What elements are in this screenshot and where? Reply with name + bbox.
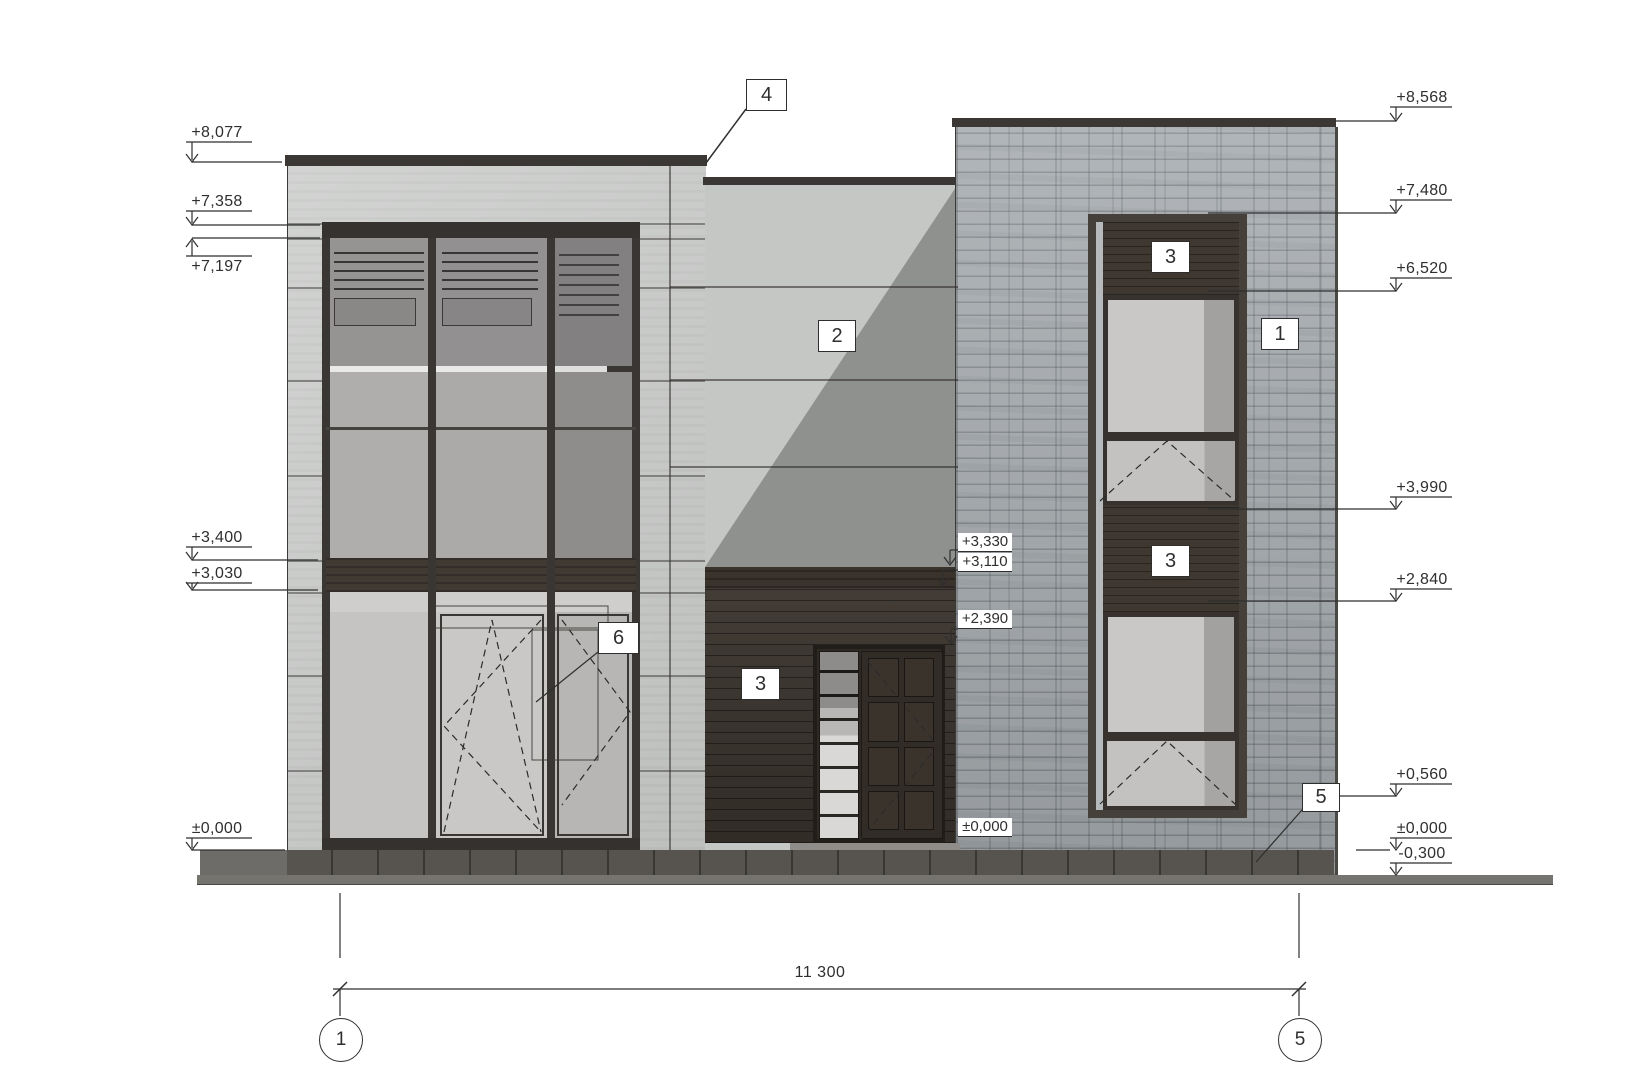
level-text-0000-left: ±0,000 xyxy=(186,820,248,838)
level-mark-7197 xyxy=(186,238,320,256)
level-text-0000-right: ±0,000 xyxy=(1392,820,1452,838)
level-mark-3400 xyxy=(186,547,318,560)
callout-5: 5 xyxy=(1302,783,1340,812)
level-text-3330: +3,330 xyxy=(958,533,1012,552)
level-text-minus0300: -0,300 xyxy=(1392,845,1452,863)
level-mark-minus0300 xyxy=(1390,863,1452,875)
callout-leaders xyxy=(432,109,1302,862)
level-mark-0560 xyxy=(1340,784,1452,796)
level-mark-7480 xyxy=(1208,200,1452,213)
level-text-8568: +8,568 xyxy=(1392,89,1452,107)
level-text-3110: +3,110 xyxy=(958,553,1012,572)
level-mark-2390-hook xyxy=(945,629,958,644)
dimension-line xyxy=(333,893,1306,1016)
slab-lines xyxy=(670,287,958,467)
level-mark-3030 xyxy=(186,582,318,590)
level-text-3030: +3,030 xyxy=(186,565,248,583)
level-text-7197: +7,197 xyxy=(186,258,248,276)
level-mark-3330-hook xyxy=(944,550,958,565)
callout-3-entrance: 3 xyxy=(741,668,780,700)
level-text-7358: +7,358 xyxy=(186,193,248,211)
level-text-8077: +8,077 xyxy=(186,124,248,142)
level-mark-3990 xyxy=(1208,497,1452,509)
callout-2: 2 xyxy=(818,320,856,352)
window-opening-symbols xyxy=(444,441,1235,840)
level-text-2840: +2,840 xyxy=(1392,571,1452,589)
level-text-3400: +3,400 xyxy=(186,529,248,547)
callout-4: 4 xyxy=(746,79,787,111)
axis-bubble-5: 5 xyxy=(1278,1018,1322,1062)
level-mark-2840 xyxy=(1208,589,1452,601)
dimension-overall: 11 300 xyxy=(770,964,870,982)
axis-bubble-1: 1 xyxy=(319,1018,363,1062)
level-mark-0000-left xyxy=(186,838,285,850)
level-text-3990: +3,990 xyxy=(1392,479,1452,497)
callout-6: 6 xyxy=(598,622,639,654)
level-text-0560: +0,560 xyxy=(1392,766,1452,784)
level-mark-8568 xyxy=(1335,107,1452,121)
level-text-2390: +2,390 xyxy=(958,610,1012,629)
level-text-7480: +7,480 xyxy=(1392,182,1452,200)
level-text-6520: +6,520 xyxy=(1392,260,1452,278)
level-text-0000-mid: ±0,000 xyxy=(958,818,1012,837)
callout-3-niche-mid: 3 xyxy=(1151,545,1190,577)
level-mark-7358 xyxy=(186,211,320,225)
level-mark-6520 xyxy=(1208,278,1452,291)
elevation-drawing: +8,077 +7,358 +7,197 +3,400 +3,030 ±0,00… xyxy=(0,0,1650,1080)
level-mark-8077 xyxy=(186,142,282,162)
callout-1: 1 xyxy=(1261,318,1299,350)
callout-3-niche-top: 3 xyxy=(1151,241,1190,273)
level-mark-3110-hook xyxy=(937,570,958,586)
